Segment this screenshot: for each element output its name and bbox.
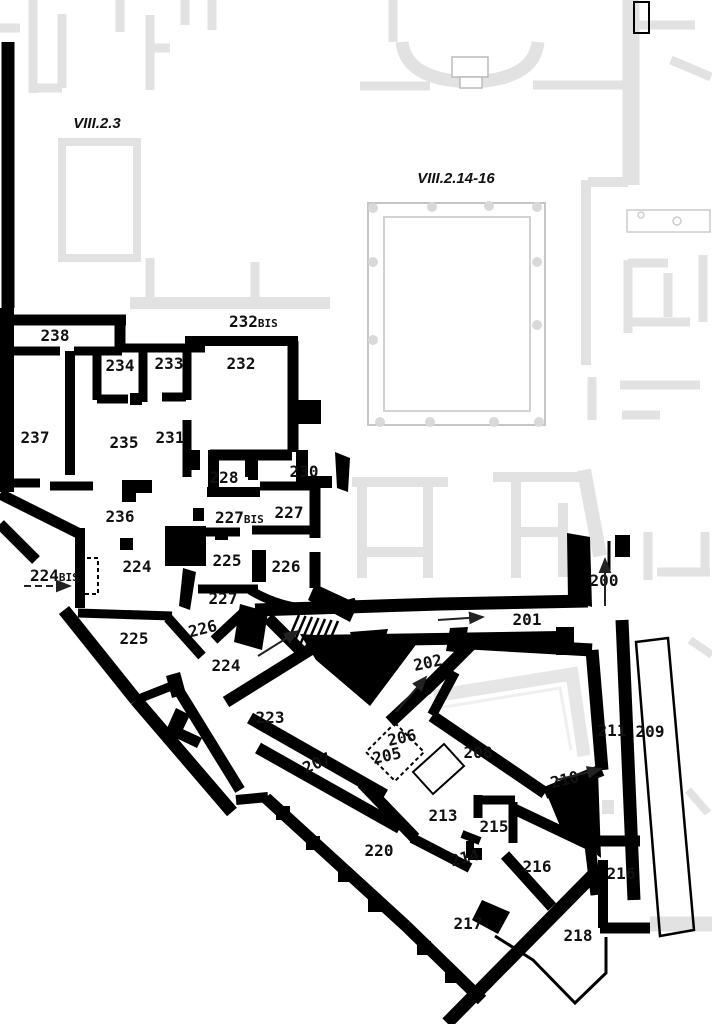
feature-rect-206 <box>413 744 464 794</box>
room-label-234: 234 <box>106 356 135 375</box>
room-label-235: 235 <box>110 433 139 452</box>
room-label-216: 216 <box>523 857 552 876</box>
room-label-213: 213 <box>429 806 458 825</box>
room-label-220: 220 <box>365 841 394 860</box>
room-label-217: 217 <box>454 914 483 933</box>
room-label-237: 237 <box>21 428 50 447</box>
room-label-238: 238 <box>41 326 70 345</box>
room-label-232: 232 <box>227 354 256 373</box>
room-label-227-bis: 227BIS <box>215 508 264 527</box>
room-label-218: 218 <box>564 926 593 945</box>
direction-arrow-4 <box>438 617 483 620</box>
room-label-225: 225 <box>213 551 242 570</box>
room-label-211: 211 <box>598 721 627 740</box>
room-label-216: 216 <box>607 864 636 883</box>
room-label-227: 227 <box>209 589 238 608</box>
room-label-228: 228 <box>210 468 239 487</box>
room-label-227: 227 <box>275 503 304 522</box>
strip-209-outline <box>636 638 694 936</box>
room-label-215: 215 <box>480 817 509 836</box>
room-label-209: 209 <box>636 722 665 741</box>
room-label-208: 208 <box>464 743 493 762</box>
floor-plan-page: VIII.2.3VIII.2.14-16238234233232232BIS23… <box>0 0 712 1024</box>
floor-plan-canvas: VIII.2.3VIII.2.14-16238234233232232BIS23… <box>0 0 712 1024</box>
room-label-224-bis: 224BIS <box>30 566 79 585</box>
room-label-226: 226 <box>272 557 301 576</box>
background-plan <box>0 0 712 924</box>
room-label-230: 230 <box>290 462 319 481</box>
room-label-233: 233 <box>155 354 184 373</box>
room-label-223: 223 <box>256 708 285 727</box>
room-label-225: 225 <box>120 629 149 648</box>
room-218-outline <box>495 936 606 1003</box>
room-label-224: 224 <box>212 656 241 675</box>
room-label-224: 224 <box>123 557 152 576</box>
room-label-231: 231 <box>156 428 185 447</box>
area-viii-2-14-16: VIII.2.14-16 <box>417 170 495 187</box>
room-label-214: 214 <box>448 845 481 870</box>
room-label-236: 236 <box>106 507 135 526</box>
peristyle-courtyard <box>368 201 545 427</box>
room-label-201: 201 <box>513 610 542 629</box>
room-label-232-bis: 232BIS <box>229 312 278 331</box>
area-viii-2-3: VIII.2.3 <box>73 115 121 132</box>
room-label-205: 205 <box>371 743 403 768</box>
peristyle-columns <box>368 201 544 427</box>
